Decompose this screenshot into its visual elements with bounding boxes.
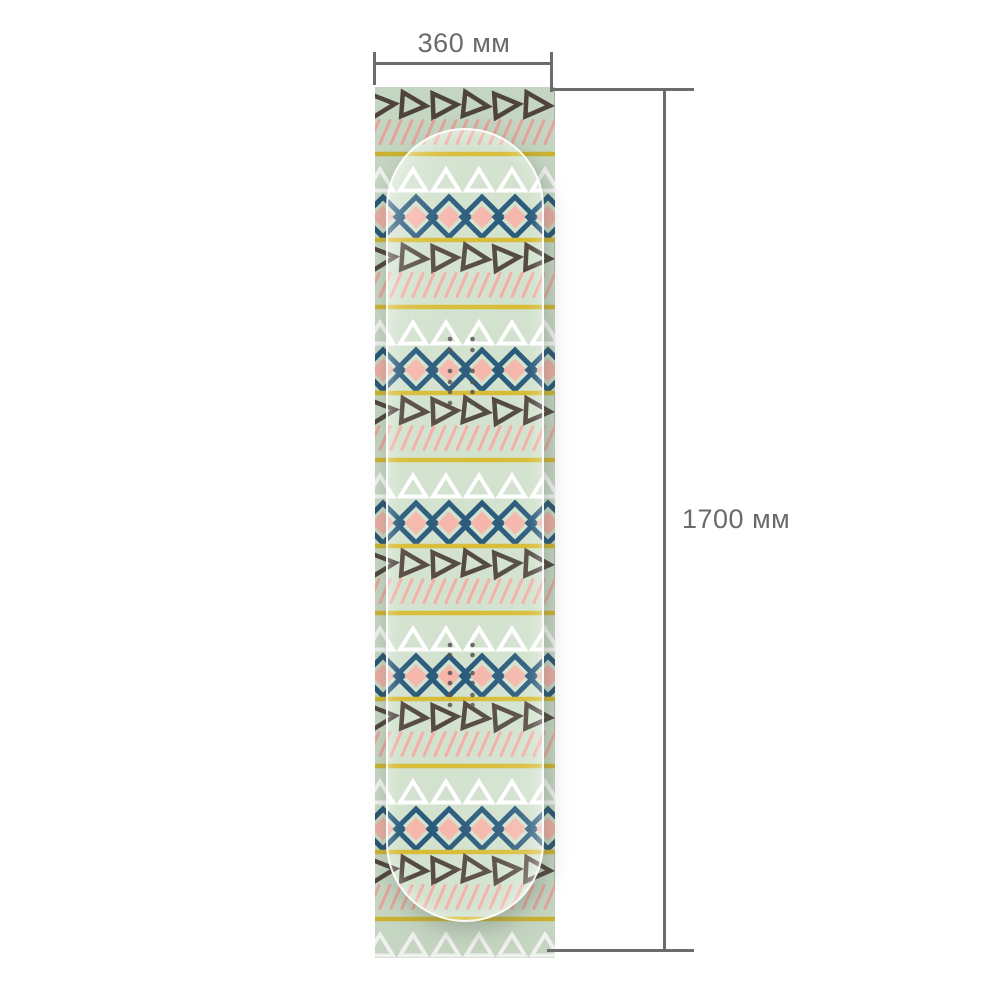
height-dimension-tick-bottom [547,949,694,952]
snowboard [386,128,544,922]
width-dimension-tick-left [373,52,376,85]
width-dimension-label: 360 мм [375,30,553,57]
width-dimension-tick-right [550,52,553,92]
height-dimension-line [663,88,666,952]
height-dimension-tick-top [551,88,694,91]
pattern-sheet [375,87,555,958]
height-dimension-label: 1700 мм [682,506,790,533]
snowboard-wrap-mockup: 360 мм 1700 мм [0,0,1000,1000]
width-dimension-line [374,62,553,65]
